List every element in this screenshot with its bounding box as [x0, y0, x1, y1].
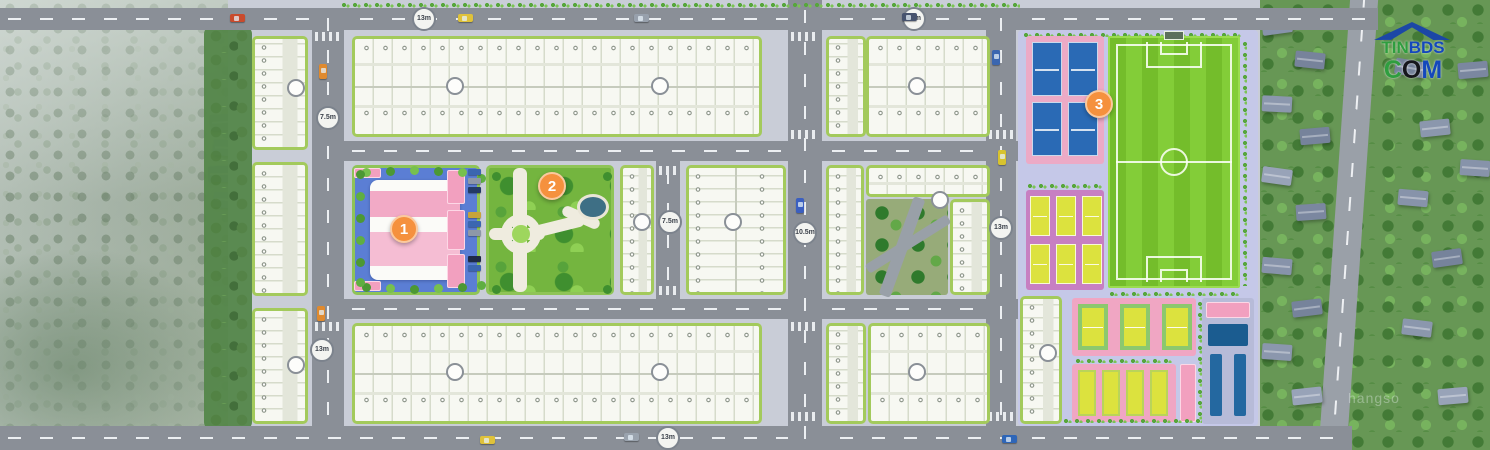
marker-3-sports-complex: 3: [1085, 90, 1113, 118]
car: [468, 169, 481, 175]
village-house: [1437, 387, 1468, 406]
logo-m: M: [1421, 56, 1442, 84]
block-badge: [724, 213, 742, 231]
lot-block-bottom-right-strip: [826, 323, 866, 424]
park-pond: [577, 194, 609, 220]
parking-stall: [447, 210, 465, 250]
marker-1-community-building: 1: [390, 215, 418, 243]
village-house: [1291, 386, 1323, 405]
road-width-badge: 13m: [310, 338, 334, 362]
crosswalk: [315, 322, 341, 331]
car: [458, 14, 473, 22]
tennis-court: [1032, 42, 1062, 96]
village-house: [1294, 50, 1326, 69]
road-v-left: [312, 8, 344, 426]
road-width-label: 13m: [315, 346, 329, 353]
parking-stall: [447, 170, 465, 204]
goal-top: [1164, 31, 1184, 40]
village-house: [1457, 61, 1488, 80]
crosswalk: [791, 412, 819, 421]
car: [319, 64, 327, 79]
sport-court: [1120, 304, 1150, 350]
badminton-court: [1056, 244, 1076, 284]
lot-block-mid-3: [826, 165, 864, 295]
block-badge: [633, 213, 651, 231]
sport-court: [1126, 370, 1144, 416]
block-badge: [446, 77, 464, 95]
crosswalk: [315, 32, 341, 41]
sport-court: [1150, 370, 1168, 416]
road-width-label: 13m: [661, 434, 675, 441]
block-badge: [287, 79, 305, 97]
badminton-court: [1082, 196, 1102, 236]
hedge-row: [1108, 290, 1240, 296]
pool-deck-pad: [1206, 302, 1250, 318]
village-house: [1397, 189, 1428, 208]
parking-pad: [354, 281, 381, 291]
road-width-badge: 13m: [989, 216, 1013, 240]
car: [998, 150, 1006, 165]
crosswalk: [989, 412, 1013, 421]
watermark: hangso: [1348, 390, 1400, 406]
car: [468, 187, 481, 193]
crosswalk: [791, 322, 819, 331]
tree-cluster: [0, 0, 9, 9]
lot-block-bottom-right: [868, 323, 990, 424]
road-mid-upper: [312, 141, 1018, 161]
road-top: [0, 8, 1378, 30]
green-space: [866, 199, 948, 295]
road-width-badge: 13m: [412, 7, 436, 31]
car: [1002, 435, 1017, 443]
crosswalk: [989, 130, 1013, 139]
logo-line-1: TINBDS: [1368, 38, 1458, 58]
badminton-court: [1030, 244, 1050, 284]
hedge-row: [1026, 182, 1102, 189]
lot-block-bottom-long: [352, 323, 762, 424]
block-badge: [931, 191, 949, 209]
car: [468, 221, 481, 227]
lot-block-top-long: [352, 36, 762, 137]
block-badge: [446, 363, 464, 381]
marker-2-central-park: 2: [538, 172, 566, 200]
marker-number: 2: [548, 178, 556, 195]
logo-c: C: [1384, 56, 1402, 84]
parking-pad: [354, 168, 381, 178]
marker-number: 1: [400, 221, 408, 238]
village-house: [1262, 95, 1293, 113]
service-pad: [1180, 364, 1196, 422]
block-badge: [287, 356, 305, 374]
car: [468, 265, 481, 271]
badminton-court: [1082, 244, 1102, 284]
tennis-court: [1032, 102, 1062, 156]
car: [634, 14, 649, 22]
crosswalk: [791, 32, 819, 41]
village-house: [1261, 343, 1292, 361]
village-house: [1419, 118, 1451, 137]
road-width-badge: 7.5m: [316, 106, 340, 130]
car: [480, 436, 495, 444]
badminton-court: [1030, 196, 1050, 236]
logo-line-2: COM: [1368, 57, 1458, 84]
site-logo: TINBDS COM: [1368, 22, 1458, 86]
tree-hedge-strip: [204, 26, 252, 430]
car: [992, 50, 1000, 65]
road-width-label: 7.5m: [320, 114, 336, 121]
logo-tin: TIN: [1381, 38, 1408, 57]
logo-bds: BDS: [1409, 38, 1445, 57]
lot-block-mid-5: [950, 199, 990, 295]
village-house: [1299, 127, 1330, 146]
car: [902, 13, 917, 21]
crosswalk: [791, 130, 819, 139]
car: [468, 178, 481, 184]
lot-block-top-right-strip: [826, 36, 866, 137]
car: [468, 230, 481, 236]
logo-o: O: [1402, 56, 1421, 84]
road-width-badge: 7.5m: [658, 210, 682, 234]
road-width-badge: 10.5m: [793, 221, 817, 245]
car: [624, 433, 639, 441]
car: [317, 306, 325, 321]
car: [468, 212, 481, 218]
parking-stall: [447, 254, 465, 288]
car: [230, 14, 245, 22]
lot-block-sports-left: [1020, 296, 1062, 424]
lot-block-top-right: [866, 36, 990, 137]
crosswalk: [659, 286, 677, 295]
car: [468, 256, 481, 262]
road-width-label: 10.5m: [795, 229, 815, 236]
tennis-court: [1068, 42, 1098, 96]
road-width-label: 13m: [994, 224, 1008, 231]
block-badge: [908, 77, 926, 95]
marker-number: 3: [1095, 96, 1103, 113]
road-mid-lower: [312, 299, 1018, 319]
hedge-row: [1074, 357, 1174, 363]
block-badge: [908, 363, 926, 381]
lap-pool: [1210, 354, 1222, 416]
hedge-row: [1241, 40, 1247, 286]
master-plan-render: 13m 13m 7.5m 13m 7.5m 10.5m 13m 13m 1 2 …: [0, 0, 1490, 450]
block-badge: [1039, 344, 1057, 362]
village-house: [1459, 159, 1490, 177]
field-center-circle: [1160, 148, 1188, 176]
road-width-badge: 13m: [656, 426, 680, 450]
lap-pool: [1234, 354, 1246, 416]
lot-block-mid-4: [866, 165, 990, 197]
block-badge: [651, 77, 669, 95]
lot-block-left-2: [252, 162, 308, 296]
park-roundabout: [501, 214, 541, 254]
swimming-pool: [1208, 324, 1248, 346]
village-house: [1261, 257, 1292, 276]
sport-court: [1078, 370, 1096, 416]
badminton-court: [1056, 196, 1076, 236]
sport-court: [1162, 304, 1192, 350]
road-width-label: 7.5m: [662, 218, 678, 225]
crosswalk: [659, 166, 677, 175]
village-house: [1295, 203, 1326, 221]
car: [796, 198, 804, 213]
sport-court: [1102, 370, 1120, 416]
block-badge: [651, 363, 669, 381]
goal-area-bottom: [1160, 269, 1188, 282]
road-width-label: 13m: [417, 15, 431, 22]
sport-court: [1078, 304, 1108, 350]
goal-area-top: [1160, 42, 1188, 55]
hedge-row: [1062, 417, 1202, 423]
